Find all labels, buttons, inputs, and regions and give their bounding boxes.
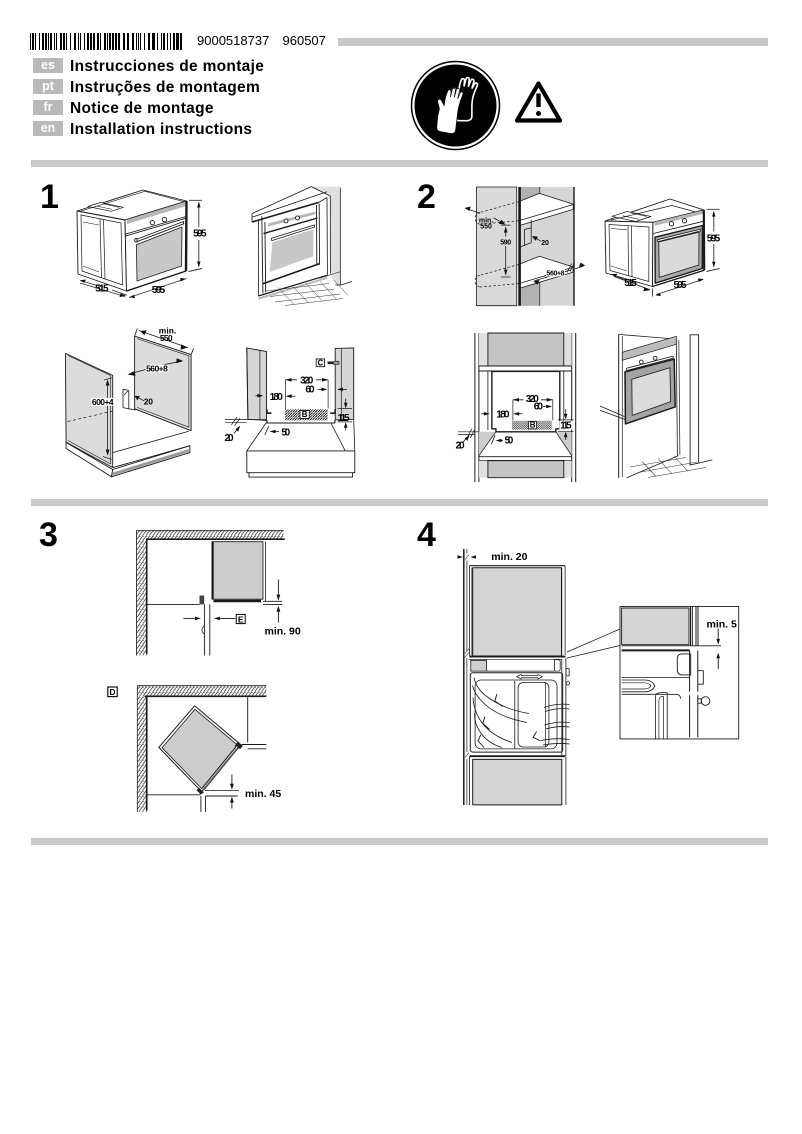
- svg-text:595: 595: [707, 234, 721, 245]
- svg-text:50: 50: [281, 428, 290, 439]
- svg-text:60: 60: [305, 385, 315, 396]
- svg-text:C: C: [318, 359, 324, 368]
- svg-text:60: 60: [534, 402, 544, 413]
- svg-text:595: 595: [193, 229, 207, 240]
- svg-text:min. 45: min. 45: [245, 788, 281, 800]
- svg-text:590: 590: [500, 239, 511, 246]
- svg-text:D: D: [109, 687, 115, 697]
- svg-text:560+8: 560+8: [146, 364, 168, 374]
- svg-text:20: 20: [144, 396, 153, 406]
- svg-text:180: 180: [496, 410, 509, 421]
- svg-text:550: 550: [480, 224, 492, 231]
- svg-text:560+8: 560+8: [546, 271, 564, 278]
- svg-text:515: 515: [95, 283, 109, 294]
- svg-text:595: 595: [674, 280, 687, 291]
- svg-text:20: 20: [541, 240, 549, 247]
- svg-text:B: B: [530, 421, 536, 430]
- svg-text:min. 90: min. 90: [265, 625, 301, 637]
- svg-text:20: 20: [456, 441, 465, 452]
- svg-text:115: 115: [338, 413, 350, 424]
- svg-text:180: 180: [270, 392, 284, 403]
- svg-text:B: B: [302, 410, 308, 419]
- svg-text:595: 595: [152, 285, 166, 296]
- svg-text:20: 20: [225, 433, 234, 444]
- svg-text:550: 550: [160, 333, 173, 343]
- svg-text:600+4: 600+4: [92, 397, 114, 407]
- svg-text:115: 115: [560, 421, 572, 432]
- svg-text:515: 515: [624, 278, 637, 289]
- svg-text:50: 50: [505, 436, 514, 447]
- svg-text:E: E: [238, 614, 244, 624]
- svg-text:min. 5: min. 5: [707, 618, 738, 630]
- svg-text:min. 20: min. 20: [491, 551, 527, 563]
